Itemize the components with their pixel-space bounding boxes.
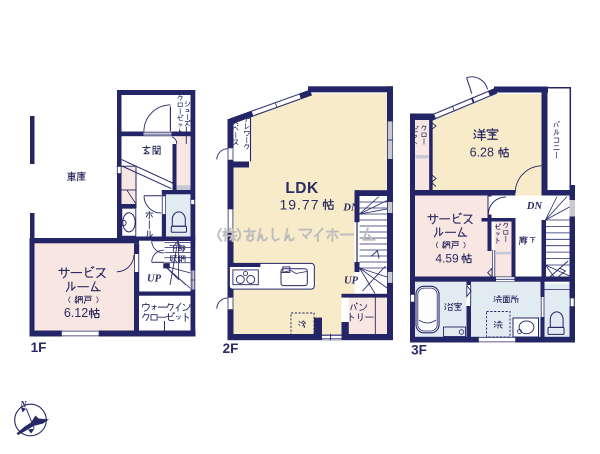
svg-text:2F: 2F [223,341,239,356]
svg-text:4.59: 4.59 [435,251,459,265]
svg-text:1F: 1F [31,340,47,355]
svg-text:N: N [19,400,27,410]
svg-text:6.12: 6.12 [64,306,88,320]
svg-text:19.77: 19.77 [279,196,319,212]
svg-text:UP: UP [344,275,359,286]
svg-text:6.28: 6.28 [470,145,494,159]
svg-text:LDK: LDK [285,180,319,197]
svg-text:UP: UP [147,274,162,285]
svg-text:3F: 3F [411,343,427,358]
svg-text:DN: DN [526,201,543,212]
svg-text:DN: DN [342,202,359,213]
